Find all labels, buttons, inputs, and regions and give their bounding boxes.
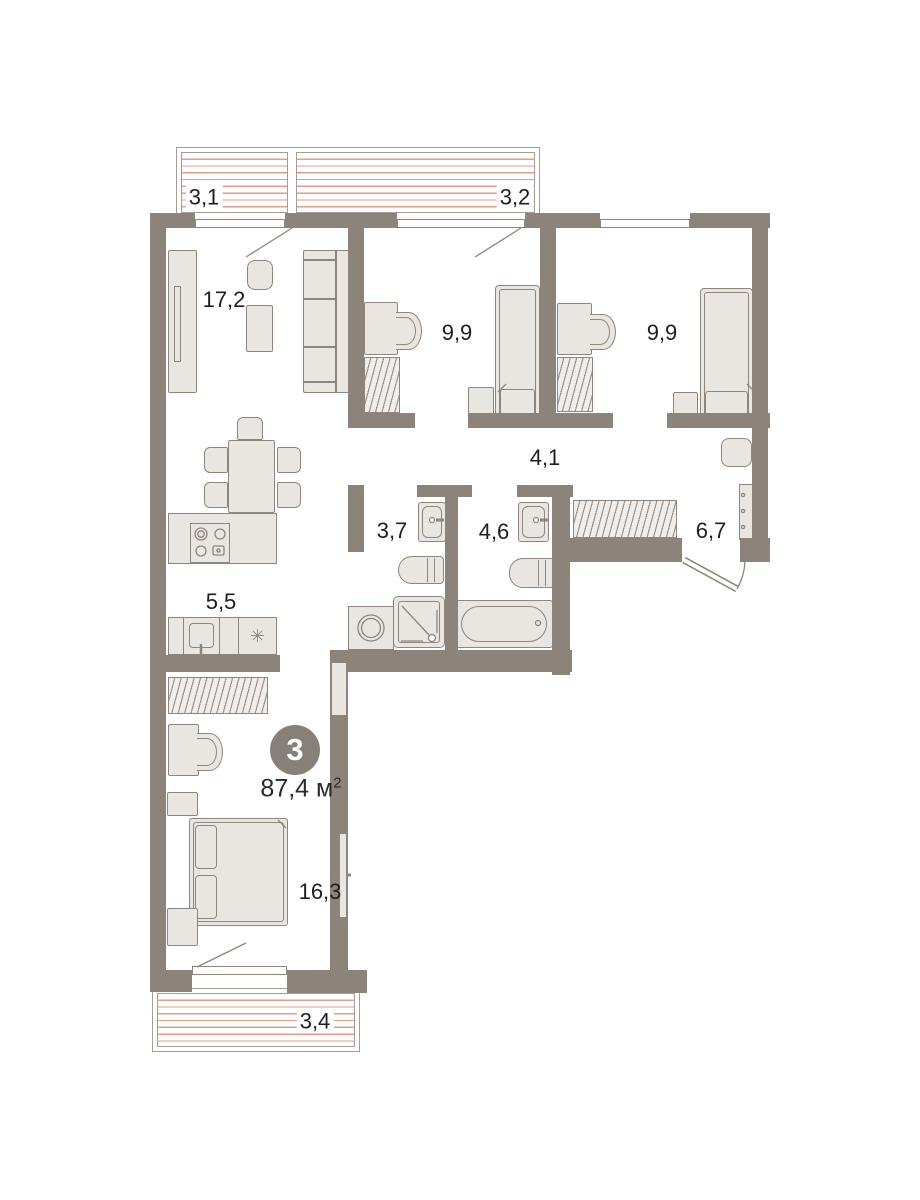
wall <box>150 970 192 992</box>
coffee-table-small <box>247 260 273 290</box>
wall <box>445 487 458 650</box>
washing-machine <box>348 606 394 650</box>
floor-plan: ✳ <box>0 0 920 1200</box>
room-label-bedroom-right: 9,9 <box>647 320 678 346</box>
hall-wardrobe <box>573 500 677 538</box>
wardrobe <box>557 357 593 412</box>
pouf <box>721 438 752 467</box>
coffee-table-large <box>246 305 273 352</box>
total-area-value: 87,4 <box>260 775 309 803</box>
balcony-top-hatch <box>181 152 535 213</box>
desk <box>364 302 398 355</box>
wall <box>667 413 770 428</box>
wall <box>552 485 570 675</box>
fridge: ✳ <box>238 617 277 655</box>
wall <box>330 650 572 672</box>
tv-living <box>174 286 181 362</box>
cooktop <box>190 523 230 563</box>
wall <box>285 213 397 228</box>
balcony-door-swing-master <box>197 943 246 967</box>
wardrobe <box>364 357 400 413</box>
dining-table <box>228 440 275 513</box>
room-label-entry-hall: 6,7 <box>696 518 727 544</box>
dining-chair <box>277 482 301 508</box>
window-living <box>195 219 285 228</box>
room-label-kitchen: 5,5 <box>206 589 237 615</box>
bathroom-sink <box>418 502 446 542</box>
tv-stand <box>168 250 197 393</box>
dining-chair <box>204 482 228 508</box>
wall <box>355 413 415 428</box>
nightstand <box>167 792 198 816</box>
bathroom-sink <box>518 502 549 542</box>
total-area-label: 87,4 м2 <box>260 774 341 803</box>
dining-chair <box>237 417 263 440</box>
window-bedroom-bottom <box>192 966 287 975</box>
wall <box>150 655 280 672</box>
window-bedroom-left <box>397 219 525 228</box>
rooms-count-badge: 3 <box>270 725 320 775</box>
wall <box>525 213 600 228</box>
nightstand <box>167 908 198 946</box>
desk <box>557 303 592 355</box>
balcony-door-swing-bedroom <box>475 228 521 257</box>
desk-chair <box>396 312 422 350</box>
total-area-sup: 2 <box>333 774 341 791</box>
wall <box>348 228 364 428</box>
wall <box>468 413 613 428</box>
wall-right <box>752 213 768 562</box>
tv-bedroom <box>339 833 347 918</box>
room-label-bedroom-left: 9,9 <box>442 320 473 346</box>
entrance-door-leaf <box>684 560 737 589</box>
balcony-divider <box>287 152 297 213</box>
window-bedroom-right <box>600 219 690 228</box>
dining-chair <box>277 447 301 473</box>
wardrobe <box>168 677 268 714</box>
wall <box>540 228 556 423</box>
bedroom-door-leaf <box>331 662 347 716</box>
room-label-master-bedroom: 16,3 <box>299 879 342 905</box>
double-bed <box>189 818 288 926</box>
balcony-door-swing-living <box>246 228 292 257</box>
room-label-bathroom: 4,6 <box>479 519 510 545</box>
desk-chair <box>197 733 223 771</box>
fridge-icon: ✳ <box>250 626 265 646</box>
room-label-balcony-top-right: 3,2 <box>497 185 534 208</box>
wall <box>287 970 367 993</box>
room-label-shower-room: 3,7 <box>377 518 408 544</box>
bathtub <box>455 600 553 648</box>
wall-left <box>150 213 166 992</box>
entrance-door-arc <box>737 560 745 589</box>
room-label-living: 17,2 <box>203 287 246 313</box>
room-label-balcony-top-left: 3,1 <box>186 185 223 208</box>
wall <box>348 485 364 552</box>
room-label-balcony-bottom: 3,4 <box>297 1009 334 1032</box>
room-label-hallway: 4,1 <box>530 445 561 471</box>
shower <box>393 596 445 648</box>
wall <box>558 538 682 562</box>
sofa <box>303 250 350 393</box>
single-bed <box>700 288 753 425</box>
single-bed <box>495 285 540 423</box>
toilet <box>509 558 555 588</box>
desk <box>168 724 199 776</box>
desk-chair <box>590 314 616 350</box>
dining-chair <box>204 447 228 473</box>
total-area-unit: м <box>309 775 333 803</box>
wall <box>740 538 770 562</box>
kitchen-sink-cabinet <box>183 617 220 655</box>
toilet <box>398 556 444 584</box>
